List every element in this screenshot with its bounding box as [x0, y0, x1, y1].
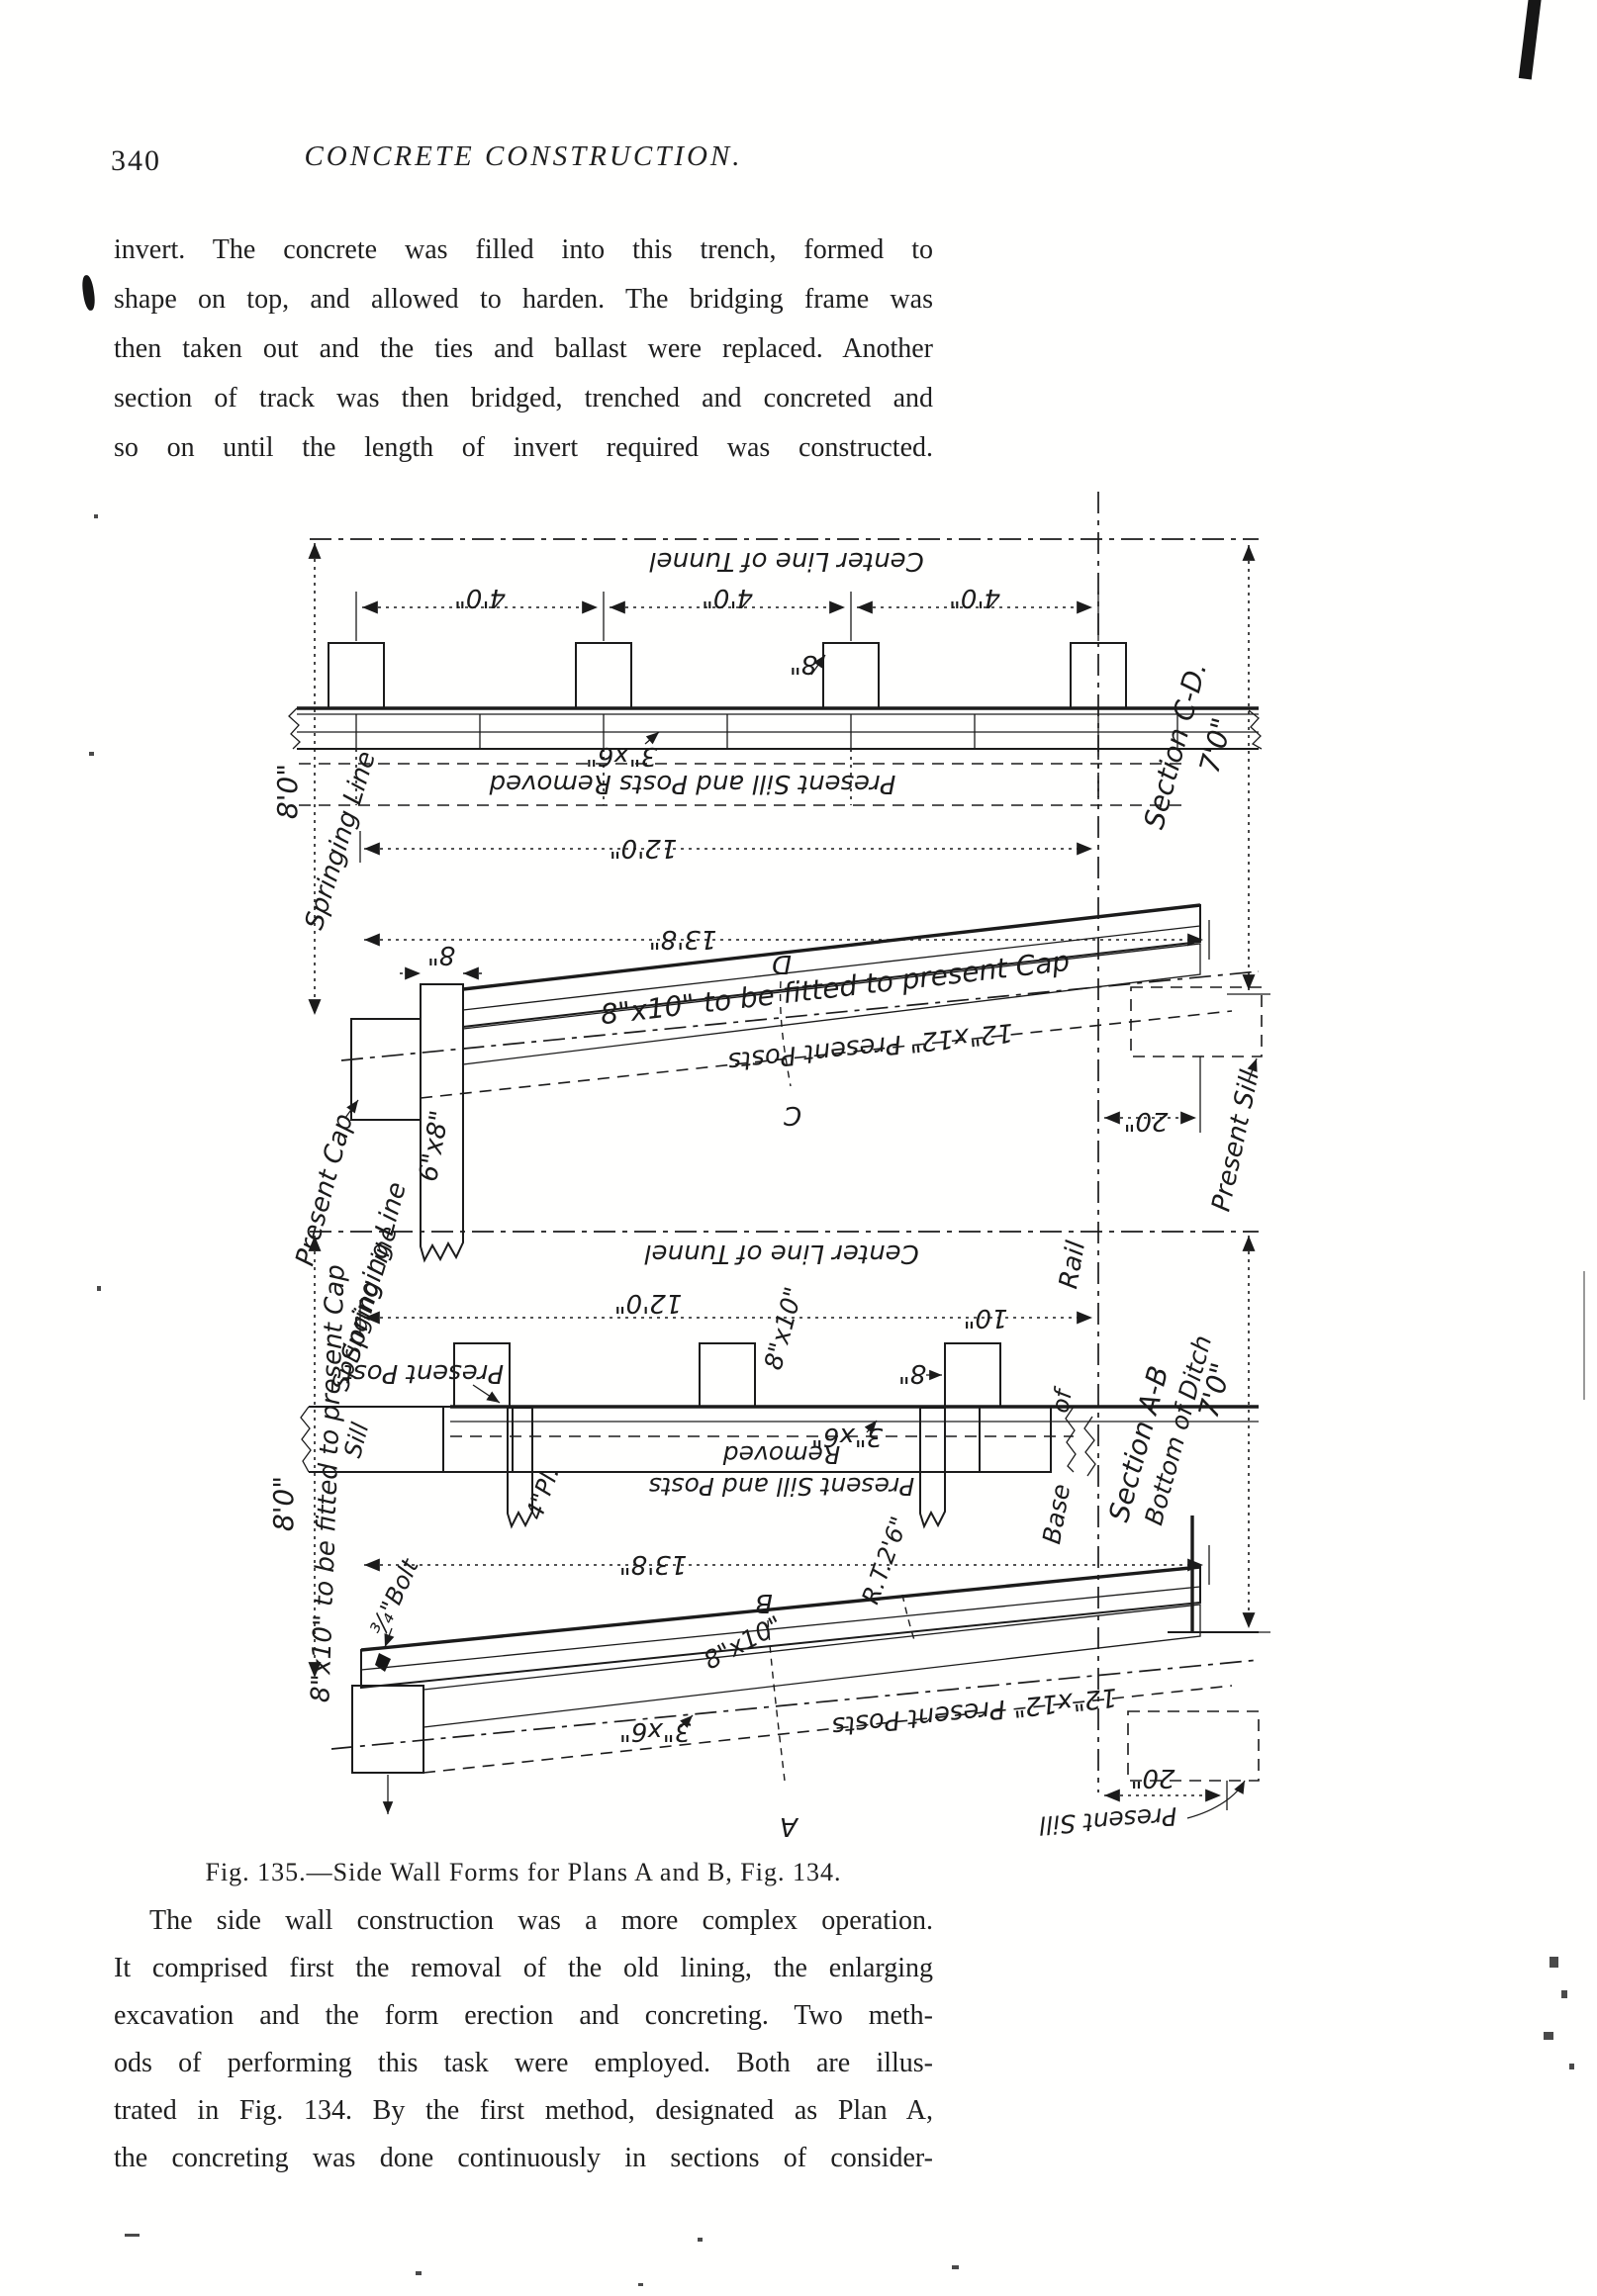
speck: [89, 752, 94, 756]
label-center-line-upper: Center Line of Tunnel: [648, 546, 923, 576]
speck: [1544, 2032, 1553, 2040]
label-present-post: Present Post: [342, 1358, 504, 1388]
label-present-posts-lower: 12"x12" Present Posts: [830, 1682, 1118, 1741]
speck: [416, 2271, 422, 2275]
figure-caption: Fig. 135.—Side Wall Forms for Plans A an…: [114, 1858, 933, 1887]
dim-13ft8-upper: 13'8": [649, 924, 717, 954]
text-line: The side wall construction was a more co…: [114, 1897, 933, 1945]
plank-right: [920, 1408, 945, 1526]
dim-8in-lower: 8": [898, 1358, 927, 1388]
speck: [698, 2238, 703, 2242]
book-page: 340 CONCRETE CONSTRUCTION. invert. The c…: [0, 0, 1597, 2296]
speck: [952, 2265, 959, 2269]
label-rail: Rail: [1054, 1238, 1091, 1291]
paragraph-bottom: The side wall construction was a more co…: [114, 1897, 933, 2182]
label-present-posts-upper: 12"x12" Present Posts: [726, 1017, 1014, 1076]
dim-20in-lower: 20": [1130, 1763, 1174, 1792]
bolt-head: [375, 1653, 391, 1672]
dim-8ft-upper: 8'0": [271, 764, 304, 819]
text-line: trated in Fig. 134. By the first method,…: [114, 2087, 933, 2135]
text-line: the concreting was done continuously in …: [114, 2135, 933, 2182]
speck: [1550, 1957, 1558, 1968]
letter-a: A: [780, 1811, 799, 1841]
dim-8ft-lower: 8'0": [267, 1476, 300, 1531]
text-line: ods of performing this task were employe…: [114, 2040, 933, 2087]
dim-7ft-upper: 7'0": [1193, 714, 1239, 777]
label-bolt: ¾"Bolt: [365, 1553, 425, 1639]
text-line: It comprised first the removal of the ol…: [114, 1945, 933, 1992]
label-base: Base: [1037, 1482, 1076, 1546]
sill-post-block-right: [980, 1407, 1051, 1472]
text-line: excavation and the form erection and con…: [114, 1992, 933, 2040]
speck: [1583, 1271, 1585, 1400]
label-8x10-slope: 8"x10": [699, 1610, 787, 1676]
speck: [94, 514, 98, 518]
label-present-sill-upper: Present Sill: [1206, 1067, 1266, 1215]
label-present-cap: Present Cap: [290, 1111, 359, 1269]
dim-13ft8-lower: 13'8": [619, 1549, 688, 1579]
speck: [1569, 2064, 1574, 2069]
sill-post-block-left: [443, 1407, 513, 1472]
speck: [1561, 1990, 1567, 1998]
label-springing-line-upper: Springing Line: [300, 748, 382, 933]
present-cap-block-upper: [351, 1019, 421, 1120]
speck: [125, 2234, 140, 2237]
letter-b: B: [755, 1588, 773, 1617]
dim-8in-post: 8": [790, 649, 818, 679]
label-center-line-lower: Center Line of Tunnel: [643, 1239, 918, 1268]
dim-12ft-lower: 12'0": [614, 1288, 683, 1318]
label-8x10-posts: 8"x10": [759, 1284, 808, 1373]
dim-4ft-3: 4'0": [949, 583, 1000, 612]
dim-4ft-2: 4'0": [702, 583, 753, 612]
dim-20in-upper: 20": [1123, 1106, 1168, 1136]
dim-8in-form-post: 8": [427, 940, 456, 969]
speck: [638, 2283, 643, 2286]
label-3x6-upper: 3"x6": [586, 741, 657, 771]
present-cap-block-lower: [352, 1686, 423, 1773]
section-ab-drawing: Center Line of Tunnel Rail 12'0" 8'0" 8"…: [267, 1223, 1270, 1841]
dim-4ft-1: 4'0": [454, 583, 506, 612]
label-of: of: [1046, 1384, 1078, 1415]
speck: [97, 1286, 101, 1291]
label-removed-upper: Present Sill and Posts Removed: [489, 769, 895, 798]
letter-c: C: [783, 1100, 801, 1130]
dim-10in-lower: 10": [963, 1303, 1007, 1332]
label-present-sill-lower: Present Sill: [1038, 1801, 1177, 1840]
upper-posts: [329, 643, 1126, 708]
dim-12ft-upper: 12'0": [610, 833, 678, 863]
label-rt26: R.T.2'6": [857, 1513, 914, 1607]
label-removed-lower-1: Present Sill and Posts: [649, 1472, 915, 1501]
